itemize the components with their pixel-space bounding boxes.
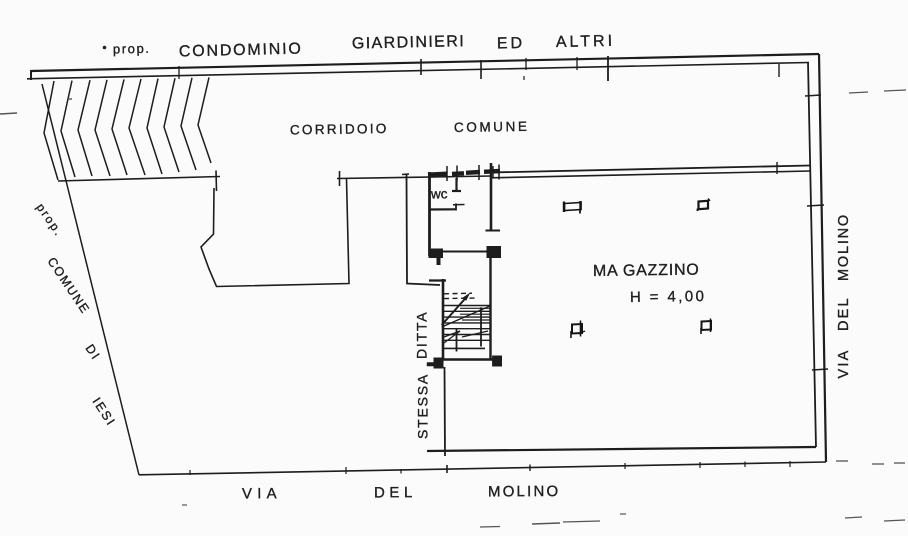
svg-text:ALTRI: ALTRI bbox=[556, 33, 615, 51]
svg-text:H = 4,00: H = 4,00 bbox=[630, 288, 707, 306]
svg-text:MA GAZZINO: MA GAZZINO bbox=[593, 262, 700, 280]
svg-text:CORRIDOIO: CORRIDOIO bbox=[290, 121, 389, 138]
svg-text:VIA: VIA bbox=[242, 485, 282, 502]
svg-text:DITTA: DITTA bbox=[414, 311, 430, 359]
svg-text:COMUNE: COMUNE bbox=[454, 119, 530, 135]
svg-text:MOLINO: MOLINO bbox=[488, 483, 560, 501]
svg-text:prop.: prop. bbox=[113, 41, 151, 57]
svg-text:CONDOMINIO: CONDOMINIO bbox=[179, 40, 303, 60]
svg-text:ED: ED bbox=[497, 35, 526, 53]
svg-text:MOLINO: MOLINO bbox=[836, 213, 852, 281]
svg-text:VIA: VIA bbox=[836, 349, 852, 379]
svg-text:STESSA: STESSA bbox=[415, 373, 431, 439]
svg-text:wc: wc bbox=[430, 186, 448, 201]
svg-text:DEL: DEL bbox=[374, 484, 417, 501]
svg-text:GIARDINIERI: GIARDINIERI bbox=[352, 33, 466, 52]
svg-text:DEL: DEL bbox=[836, 296, 852, 331]
